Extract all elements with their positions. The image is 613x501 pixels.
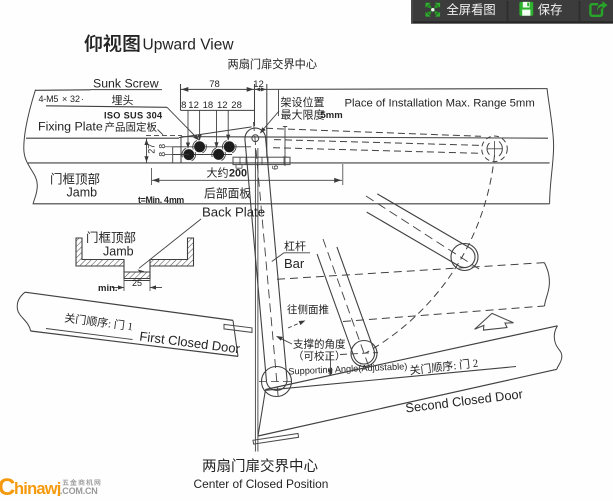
svg-text:6: 6 (270, 165, 280, 170)
svg-text:杠杆: 杠杆 (284, 239, 306, 253)
svg-text:hinawj: hinawj (14, 480, 61, 496)
svg-text:25: 25 (132, 278, 142, 288)
svg-text:保存: 保存 (538, 3, 563, 17)
svg-text:·: · (81, 94, 84, 104)
svg-text:28: 28 (231, 100, 242, 111)
svg-text:架设位置: 架设位置 (281, 95, 325, 109)
svg-text:32: 32 (70, 94, 80, 104)
svg-text:27: 27 (147, 144, 157, 154)
svg-text:Jamb: Jamb (67, 186, 98, 200)
svg-text:往侧面推: 往侧面推 (287, 303, 329, 316)
svg-text:5mm: 5mm (321, 110, 343, 121)
svg-text:门框顶部: 门框顶部 (86, 230, 136, 245)
svg-text:（可校正）: （可校正） (293, 350, 346, 363)
svg-text:门框顶部: 门框顶部 (50, 172, 100, 187)
svg-text:8: 8 (157, 152, 167, 157)
svg-text:18: 18 (203, 100, 214, 111)
svg-text:大约: 大约 (207, 166, 229, 180)
svg-text:12: 12 (217, 100, 228, 111)
svg-text:支撑的角度: 支撑的角度 (293, 338, 346, 351)
svg-text:仰视图: 仰视图 (84, 30, 141, 57)
svg-text:×: × (62, 94, 67, 104)
svg-text:Back Plate: Back Plate (202, 205, 265, 220)
svg-text:Center of Closed Position: Center of Closed Position (194, 477, 329, 491)
svg-text:8: 8 (181, 100, 186, 111)
svg-text:min.: min. (98, 283, 118, 294)
svg-text:Place of Installation Max. Ran: Place of Installation Max. Range 5mm (345, 98, 535, 110)
svg-text:4-M5: 4-M5 (39, 94, 59, 104)
svg-text:产品固定板: 产品固定板 (105, 121, 158, 134)
svg-text:Bar: Bar (284, 256, 305, 271)
svg-text:全屏看图: 全屏看图 (447, 2, 496, 17)
svg-text:Upward View: Upward View (143, 37, 235, 54)
svg-text:200: 200 (229, 168, 247, 180)
svg-text:两扇门扉交界中心: 两扇门扉交界中心 (202, 457, 318, 475)
svg-text:8: 8 (157, 144, 167, 149)
svg-text:埋头: 埋头 (112, 94, 134, 107)
svg-text:后部面板: 后部面板 (204, 187, 251, 201)
svg-text:两扇门扉交界中心: 两扇门扉交界中心 (228, 57, 318, 71)
svg-text:Jamb: Jamb (103, 245, 134, 259)
svg-text:Fixing Plate: Fixing Plate (38, 120, 103, 134)
svg-text:mm: mm (169, 195, 184, 205)
svg-text:t=Min. 4: t=Min. 4 (138, 195, 169, 205)
svg-text:Sunk Screw: Sunk Screw (93, 77, 159, 91)
svg-text:.COM.CN: .COM.CN (60, 486, 98, 496)
svg-text:ISO SUS 304: ISO SUS 304 (104, 111, 163, 121)
svg-text:最大限度: 最大限度 (281, 108, 325, 122)
svg-text:78: 78 (209, 79, 220, 90)
svg-text:12: 12 (188, 100, 199, 111)
